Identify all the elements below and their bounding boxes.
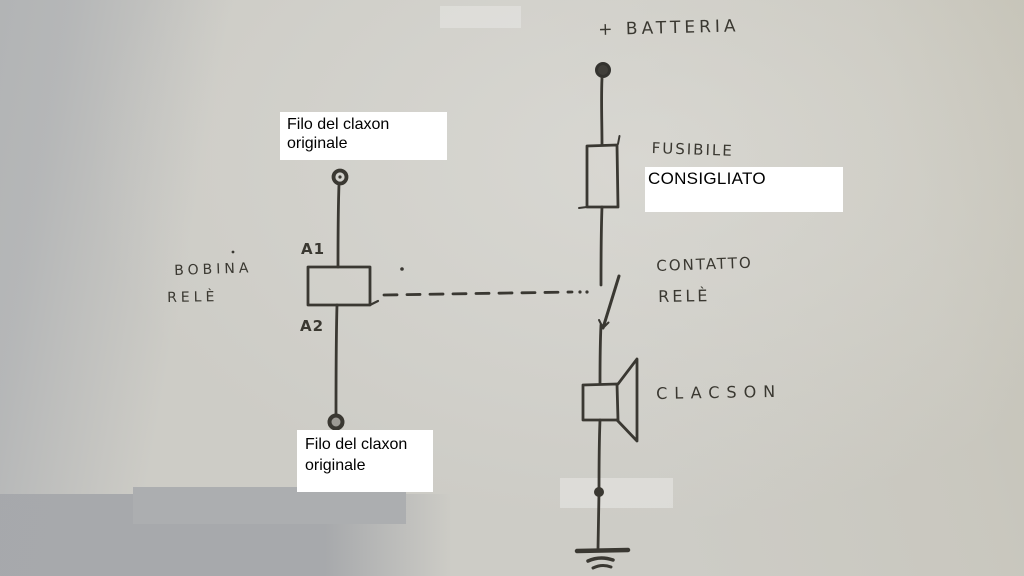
wire-note-top: Filo del claxon originale — [280, 112, 447, 160]
terminal-a1-label: A1 — [301, 240, 325, 258]
fuse-to-contact-wire — [601, 207, 602, 285]
circuit-drawing — [0, 0, 1024, 576]
coil-rele-label: RELÈ — [167, 289, 218, 306]
junction-to-ground-wire — [598, 492, 599, 549]
coil-contact-dashed-link — [384, 290, 589, 295]
coil-terminal-top-dot — [338, 175, 341, 178]
battery-terminal-icon — [597, 64, 610, 77]
fuse-symbol-icon — [579, 136, 620, 208]
horn-label: CLACSON — [656, 382, 782, 403]
horn-to-junction-wire — [599, 420, 600, 492]
ink-speck — [400, 267, 404, 271]
contact-rele-label: RELÈ — [658, 286, 711, 306]
battery-label: + BATTERIA — [598, 16, 740, 40]
fuse-label: FUSIBILE — [651, 139, 734, 160]
photographed-schematic: + BATTERIA FUSIBILE CONTATTO RELÈ CLACSO… — [0, 0, 1024, 576]
coil-lower-wire — [336, 305, 337, 415]
contact-to-horn-wire — [600, 325, 601, 384]
coil-upper-wire — [338, 184, 339, 267]
horn-speaker-icon — [583, 359, 637, 441]
recommended-note: CONSIGLIATO — [645, 167, 843, 212]
coil-terminal-bottom-icon — [330, 416, 343, 429]
contact-label: CONTATTO — [656, 254, 753, 275]
coil-label: BOBINA — [174, 260, 253, 279]
ink-speck — [232, 251, 235, 254]
ground-symbol-icon — [577, 550, 628, 568]
relay-coil-symbol-icon — [308, 267, 378, 305]
terminal-a2-label: A2 — [300, 317, 324, 335]
wire-note-bottom: Filo del claxon originale — [297, 430, 433, 492]
